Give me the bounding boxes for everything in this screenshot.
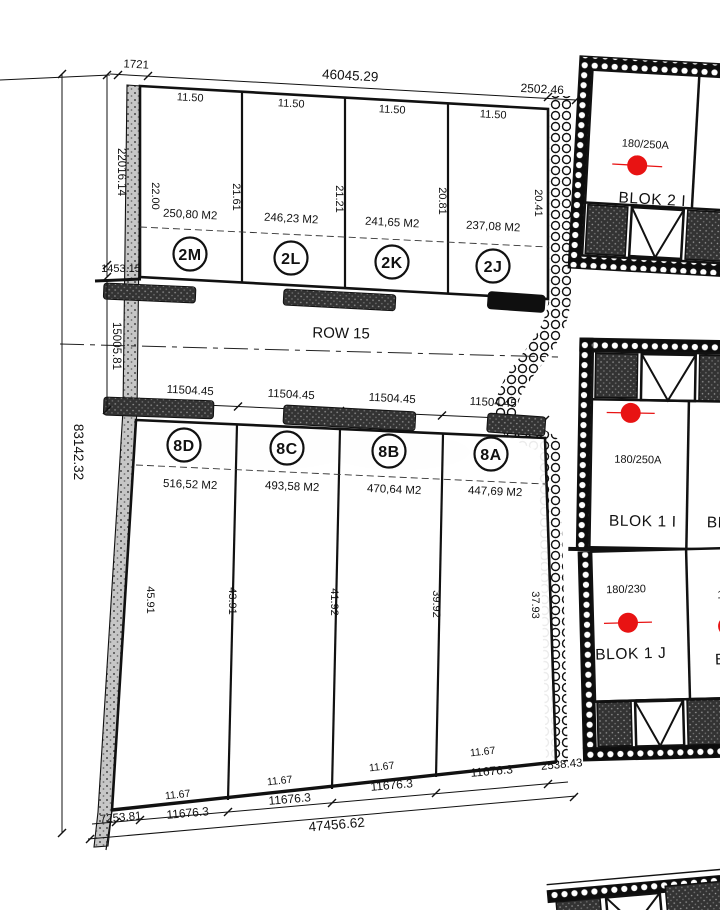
row-dim-label: 11504.45 [469,396,517,410]
dim-segment: 11676.3 [470,762,514,780]
dim-left-lower: 15005.81 [110,322,122,370]
plot-depth-label: 41.92 [328,588,340,616]
plot-id-8c: 8C [271,432,304,465]
plot-id-text: 8C [276,441,297,458]
plot-id-8a: 8A [475,438,508,471]
plot-id-2j: 2J [477,250,510,283]
row-dim-label: 11504.45 [166,384,214,398]
plot-area-label: 447,69 M2 [468,485,523,499]
plot-area-label: 470,64 M2 [367,483,422,497]
block-type-label: 180/230 [606,583,646,596]
plot-depth-label: 45.91 [144,586,156,614]
plot-depth-label: 20.41 [532,189,544,217]
plot-width-label: 11.50 [480,108,507,121]
plot-id-text: 2L [281,251,301,268]
plot-depth-label: 22.00 [149,182,161,210]
plot-id-text: 2M [178,247,201,264]
site-plan-canvas: 11.50 11.50 11.50 11.50 22.00 21.61 21.2… [0,0,720,910]
plot-depth-label: 21.61 [230,183,242,211]
plot-id-text: 8A [480,447,501,464]
plot-id-text: 2K [381,255,402,272]
plot-depth-label: 37.93 [529,591,541,619]
garage-cell [595,353,638,398]
block-name-label: BLOK 1 J [595,645,667,664]
dim-bottom-total: 47456.62 [308,815,365,835]
garage-cell [687,697,720,745]
row-dim-label: 11504.45 [267,388,315,402]
blok-1j: 180/230 BLOK 1 J 180 BLO [578,546,720,761]
block-name-label-partial: BLO [715,651,720,669]
dim-segment: 11676.3 [370,776,414,794]
dim-left-total: 83142.32 [71,424,86,480]
garage-cell [597,702,632,747]
garage-cell [699,355,720,403]
dim-top-total: 46045.29 [322,67,379,85]
block-name-label: BLOK 1 I [609,513,677,531]
row-dim-label: 11504.45 [368,392,416,406]
garage-cell [685,210,720,265]
dim-bottom-offset-right: 2538.43 [541,757,583,773]
bottom-corner-block-partial [547,867,720,910]
dim-segment: 11676.3 [166,804,210,822]
plot-depth-label: 39.92 [430,590,442,618]
blok-1i: 180/250A BLOK 1 I BL [568,338,720,554]
plot-width-label: 11.50 [278,97,305,110]
plot-id-text: 2J [484,259,503,276]
block-name-label-partial: BL [707,514,720,531]
block-type-label: 180/250A [614,454,662,467]
plot-width-label: 11.50 [379,103,406,116]
garage-door-symbol [635,700,684,746]
plot-width-label: 11.50 [177,91,204,104]
plot-depth-label: 43.91 [226,587,238,615]
plot-id-text: 8D [173,438,194,455]
garage-cell [585,205,628,256]
dim-top-offset-left: 1721 [123,58,149,71]
plot-id-text: 8B [378,444,399,461]
dim-left-upper: 22016.14 [115,148,127,197]
plot-id-8b: 8B [373,435,406,468]
garage-door-symbol [641,354,696,401]
dim-left-mid: 1453.15 [101,263,141,275]
dim-top-offset-right: 2502.46 [520,81,564,97]
plot-id-8d: 8D [168,429,201,462]
plot-id-2l: 2L [275,242,308,275]
plot-area-label: 493,58 M2 [265,480,320,494]
plot-depth-label: 21.21 [333,185,345,213]
garage-door-symbol [629,207,684,259]
blok-2i: 180/250A BLOK 2 I [568,56,720,280]
site-plan-drawing: 11.50 11.50 11.50 11.50 22.00 21.61 21.2… [0,0,720,910]
plot-area-label: 516,52 M2 [163,478,218,492]
plot-depth-label: 20.81 [436,187,448,215]
plot-id-2k: 2K [376,246,409,279]
road-name-label: ROW 15 [312,325,370,343]
plot-id-2m: 2M [174,238,207,271]
